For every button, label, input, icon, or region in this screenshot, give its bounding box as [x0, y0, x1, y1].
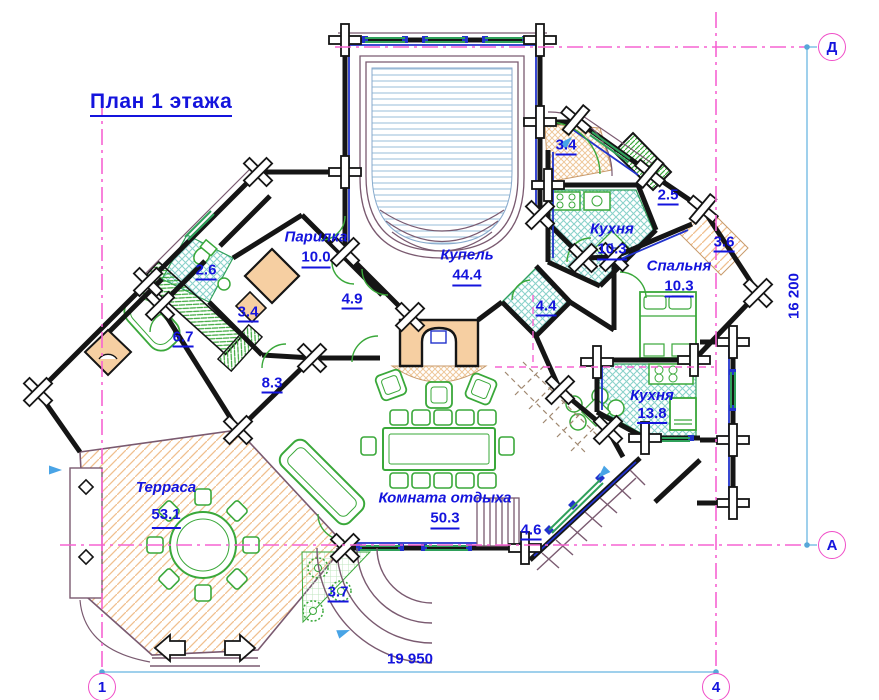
axis-marker-d: Д	[818, 33, 846, 61]
room-label-parilka: Парилка 10.0	[285, 228, 348, 269]
area-pantry: 2.5	[658, 187, 679, 206]
axis-marker-a: А	[818, 531, 846, 559]
room-label-terrace: Терраса 53.1	[136, 475, 196, 529]
dimension-right: 16 200	[786, 273, 803, 319]
room-area: 10.3	[597, 239, 626, 261]
area-bath-center: 4.4	[536, 298, 557, 317]
area-hall-ne: 3.6	[714, 234, 735, 253]
room-area: 10.0	[301, 247, 330, 269]
dimension-bottom: 19 950	[387, 651, 433, 668]
area-wc-left: 2.6	[196, 262, 217, 281]
area-hall-center: 4.9	[342, 291, 363, 310]
area-bath-left: 6.7	[173, 329, 194, 348]
axis-marker-4: 4	[702, 673, 730, 700]
fireplace	[400, 320, 478, 366]
room-label-rest-room: Комната отдыха 50.3	[378, 489, 511, 530]
area-entry-top: 3.4	[556, 137, 577, 156]
room-area: 50.3	[430, 508, 459, 530]
floor-plan-page: План 1 этажа Парилка 10.0 Купель 44.4 Ку…	[0, 0, 879, 700]
room-label-bedroom: Спальня 10.3	[647, 257, 712, 298]
room-name: Купель	[440, 246, 493, 266]
room-label-kitchen-top: Кухня 10.3	[590, 220, 634, 261]
room-name: Спальня	[647, 257, 712, 277]
room-area: 10.3	[664, 276, 693, 298]
axis-marker-1: 1	[88, 673, 116, 700]
room-area: 53.1	[151, 502, 180, 530]
se-staircase	[537, 470, 645, 570]
room-area: 44.4	[452, 265, 481, 287]
room-name: Комната отдыха	[378, 489, 511, 509]
page-title: План 1 этажа	[90, 90, 232, 117]
area-stairs: 4.6	[521, 522, 542, 541]
room-name: Терраса	[136, 475, 196, 501]
room-name: Кухня	[630, 388, 674, 405]
room-label-kupel: Купель 44.4	[440, 246, 493, 287]
room-area: 13.8	[637, 406, 666, 425]
room-name: Кухня	[590, 220, 634, 240]
area-hall-left: 3.4	[238, 304, 259, 323]
pool	[360, 56, 524, 258]
room-name: Парилка	[285, 228, 348, 248]
room-label-kitchen-right: Кухня 13.8	[630, 388, 674, 424]
area-corridor: 8.3	[262, 375, 283, 394]
area-steps: 3.7	[328, 584, 349, 603]
